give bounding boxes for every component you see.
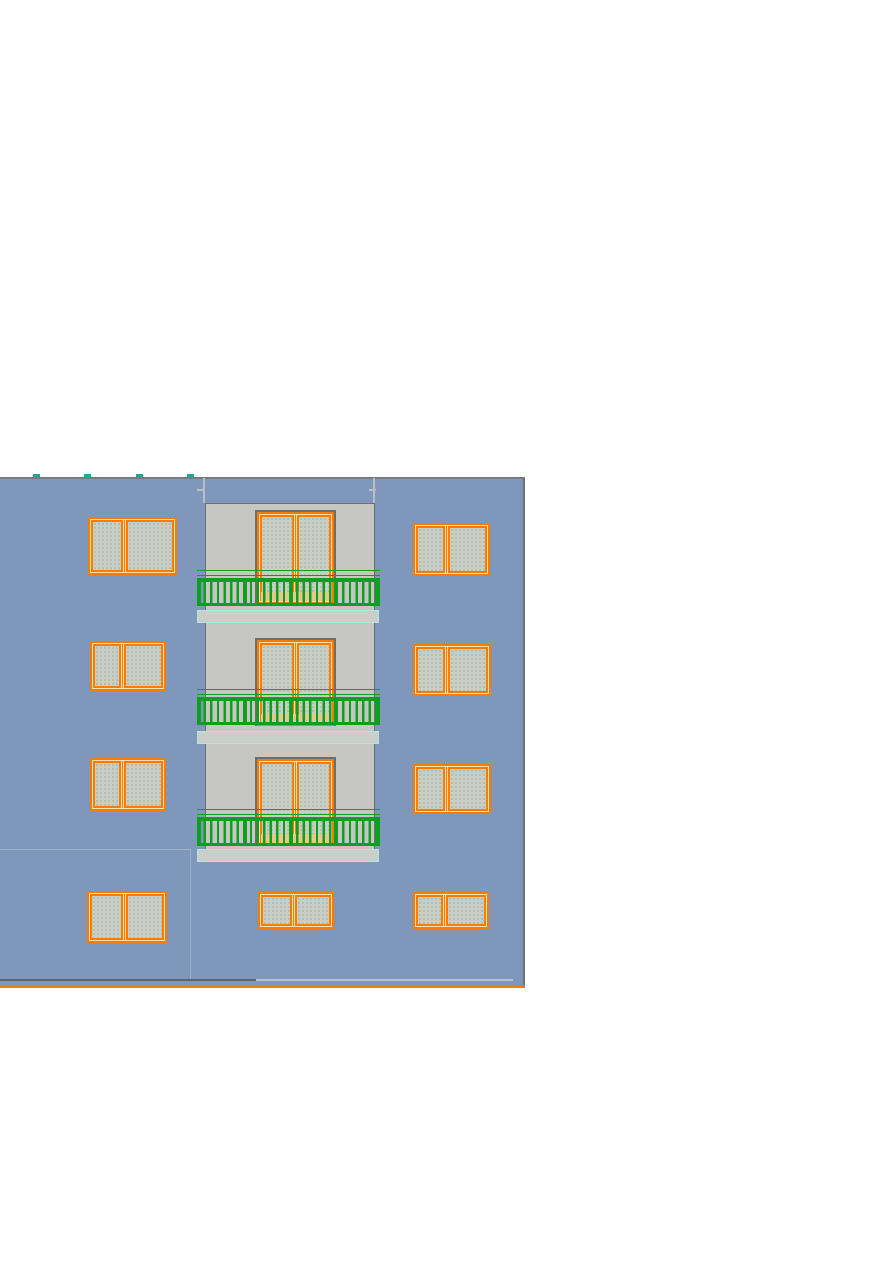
window[interactable] (87, 891, 167, 943)
railing-post (289, 817, 293, 846)
glass-leaf-left (416, 767, 445, 811)
railing-post (376, 817, 380, 846)
window[interactable] (413, 892, 489, 929)
window[interactable] (413, 764, 491, 814)
bay-step-mark-left (197, 489, 204, 491)
railing-post (376, 578, 380, 606)
glass-leaf-left (416, 895, 443, 926)
glass-leaf-right (126, 894, 164, 940)
frame-mullion (446, 767, 447, 811)
window[interactable] (258, 892, 334, 929)
glass-leaf-right (124, 644, 163, 688)
window[interactable] (413, 523, 490, 576)
glass-leaf-left (93, 761, 121, 808)
frame-mullion (293, 895, 294, 926)
railing-handrail-line (197, 575, 380, 576)
railing-post (334, 578, 338, 606)
balcony-railing[interactable] (197, 689, 380, 725)
window[interactable] (413, 644, 491, 696)
frame-mullion (124, 894, 125, 940)
glass-leaf-right (448, 526, 487, 573)
balcony-railing[interactable] (197, 809, 380, 846)
frame-mullion (122, 761, 123, 808)
balcony-slab (197, 731, 379, 744)
base-line-orange (0, 985, 525, 988)
railing-post (197, 817, 201, 846)
glass-leaf-left (416, 647, 445, 693)
glass-leaf-right (124, 761, 163, 808)
glass-leaf-right (448, 767, 488, 811)
railing-post (334, 697, 338, 725)
glass-leaf-left (91, 520, 123, 572)
frame-mullion (122, 644, 123, 688)
glass-leaf-right (448, 647, 488, 693)
railing-handrail-line (197, 809, 380, 810)
glass-leaf-right (126, 520, 174, 572)
railing-handrail-line (197, 694, 380, 695)
frame-mullion (444, 895, 445, 926)
railing-handrail-line (197, 689, 380, 690)
railing-post (243, 578, 247, 606)
window[interactable] (90, 641, 166, 691)
bay-step-mark-right (369, 489, 376, 491)
railing-handrail-line (197, 814, 380, 815)
railing-handrail-line (197, 570, 380, 571)
balcony-slab (197, 610, 379, 623)
glass-leaf-left (416, 526, 445, 573)
window[interactable] (88, 517, 177, 575)
frame-mullion (446, 526, 447, 573)
survey-tick (84, 474, 91, 477)
glass-leaf-right (446, 895, 486, 926)
frame-mullion (446, 647, 447, 693)
drawing-canvas[interactable] (0, 0, 893, 1263)
glass-leaf-right (295, 895, 331, 926)
railing-post (243, 817, 247, 846)
base-line-dark (0, 979, 256, 981)
survey-tick (187, 474, 194, 477)
ground-split-line-h (0, 849, 191, 850)
railing-post (289, 578, 293, 606)
railing-post (197, 697, 201, 725)
glass-leaf-left (261, 895, 292, 926)
window[interactable] (90, 758, 166, 811)
railing-post (334, 817, 338, 846)
railing-post (289, 697, 293, 725)
glass-leaf-left (90, 894, 123, 940)
glass-leaf-left (93, 644, 121, 688)
frame-mullion (124, 520, 125, 572)
balcony-slab (197, 849, 379, 862)
railing-post (243, 697, 247, 725)
ground-split-line-v (190, 849, 191, 980)
balcony-railing[interactable] (197, 570, 380, 606)
survey-tick (33, 474, 40, 477)
survey-tick (136, 474, 143, 477)
railing-post (197, 578, 201, 606)
base-line-light (256, 979, 513, 981)
railing-post (376, 697, 380, 725)
